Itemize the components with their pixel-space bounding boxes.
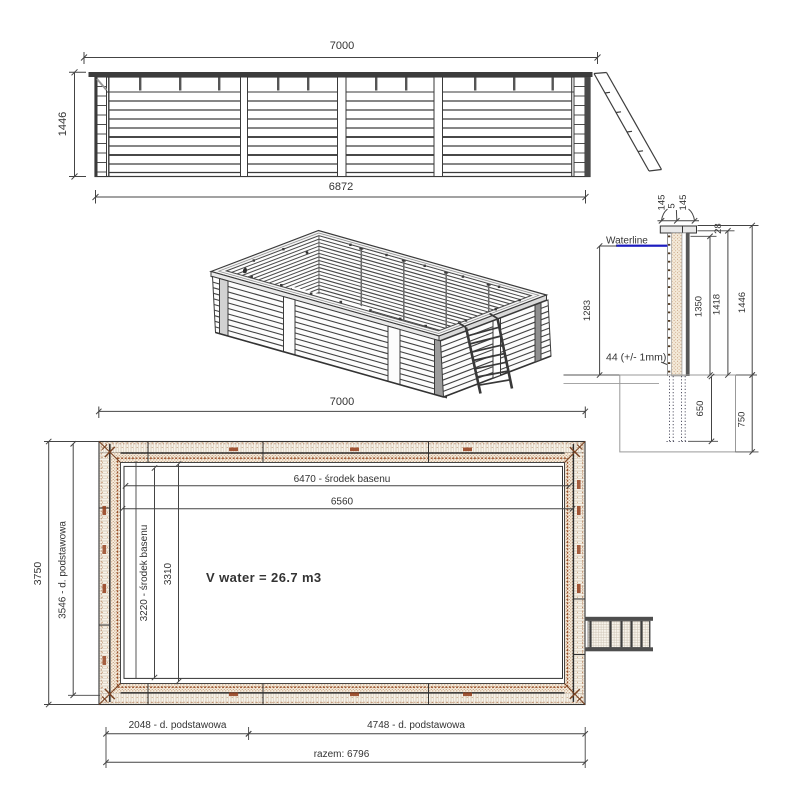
svg-text:6560: 6560: [331, 497, 354, 508]
svg-text:3546 - d. podstawowa: 3546 - d. podstawowa: [58, 521, 69, 619]
svg-text:7000: 7000: [330, 40, 354, 52]
svg-text:6872: 6872: [329, 181, 353, 193]
svg-text:3310: 3310: [163, 562, 174, 585]
svg-text:5: 5: [667, 203, 678, 208]
svg-text:28: 28: [713, 223, 724, 234]
svg-text:650: 650: [695, 401, 706, 417]
svg-text:1446: 1446: [57, 112, 69, 136]
svg-text:4748 - d. podstawowa: 4748 - d. podstawowa: [367, 720, 465, 731]
svg-text:1418: 1418: [712, 294, 723, 315]
svg-text:1283: 1283: [582, 300, 593, 321]
svg-text:6470 - środek basenu: 6470 - środek basenu: [294, 474, 391, 485]
svg-text:V water = 26.7 m3: V water = 26.7 m3: [206, 570, 322, 585]
svg-text:145: 145: [678, 195, 689, 211]
svg-text:razem: 6796: razem: 6796: [314, 749, 370, 760]
svg-text:1446: 1446: [737, 292, 748, 313]
svg-text:44 (+/- 1mm): 44 (+/- 1mm): [606, 352, 666, 364]
svg-text:1350: 1350: [694, 296, 705, 317]
svg-text:750: 750: [737, 412, 748, 428]
svg-text:3750: 3750: [32, 562, 44, 586]
svg-text:7000: 7000: [330, 396, 354, 408]
svg-text:2048 - d. podstawowa: 2048 - d. podstawowa: [129, 720, 227, 731]
svg-text:3220 - środek basenu: 3220 - środek basenu: [139, 525, 150, 622]
